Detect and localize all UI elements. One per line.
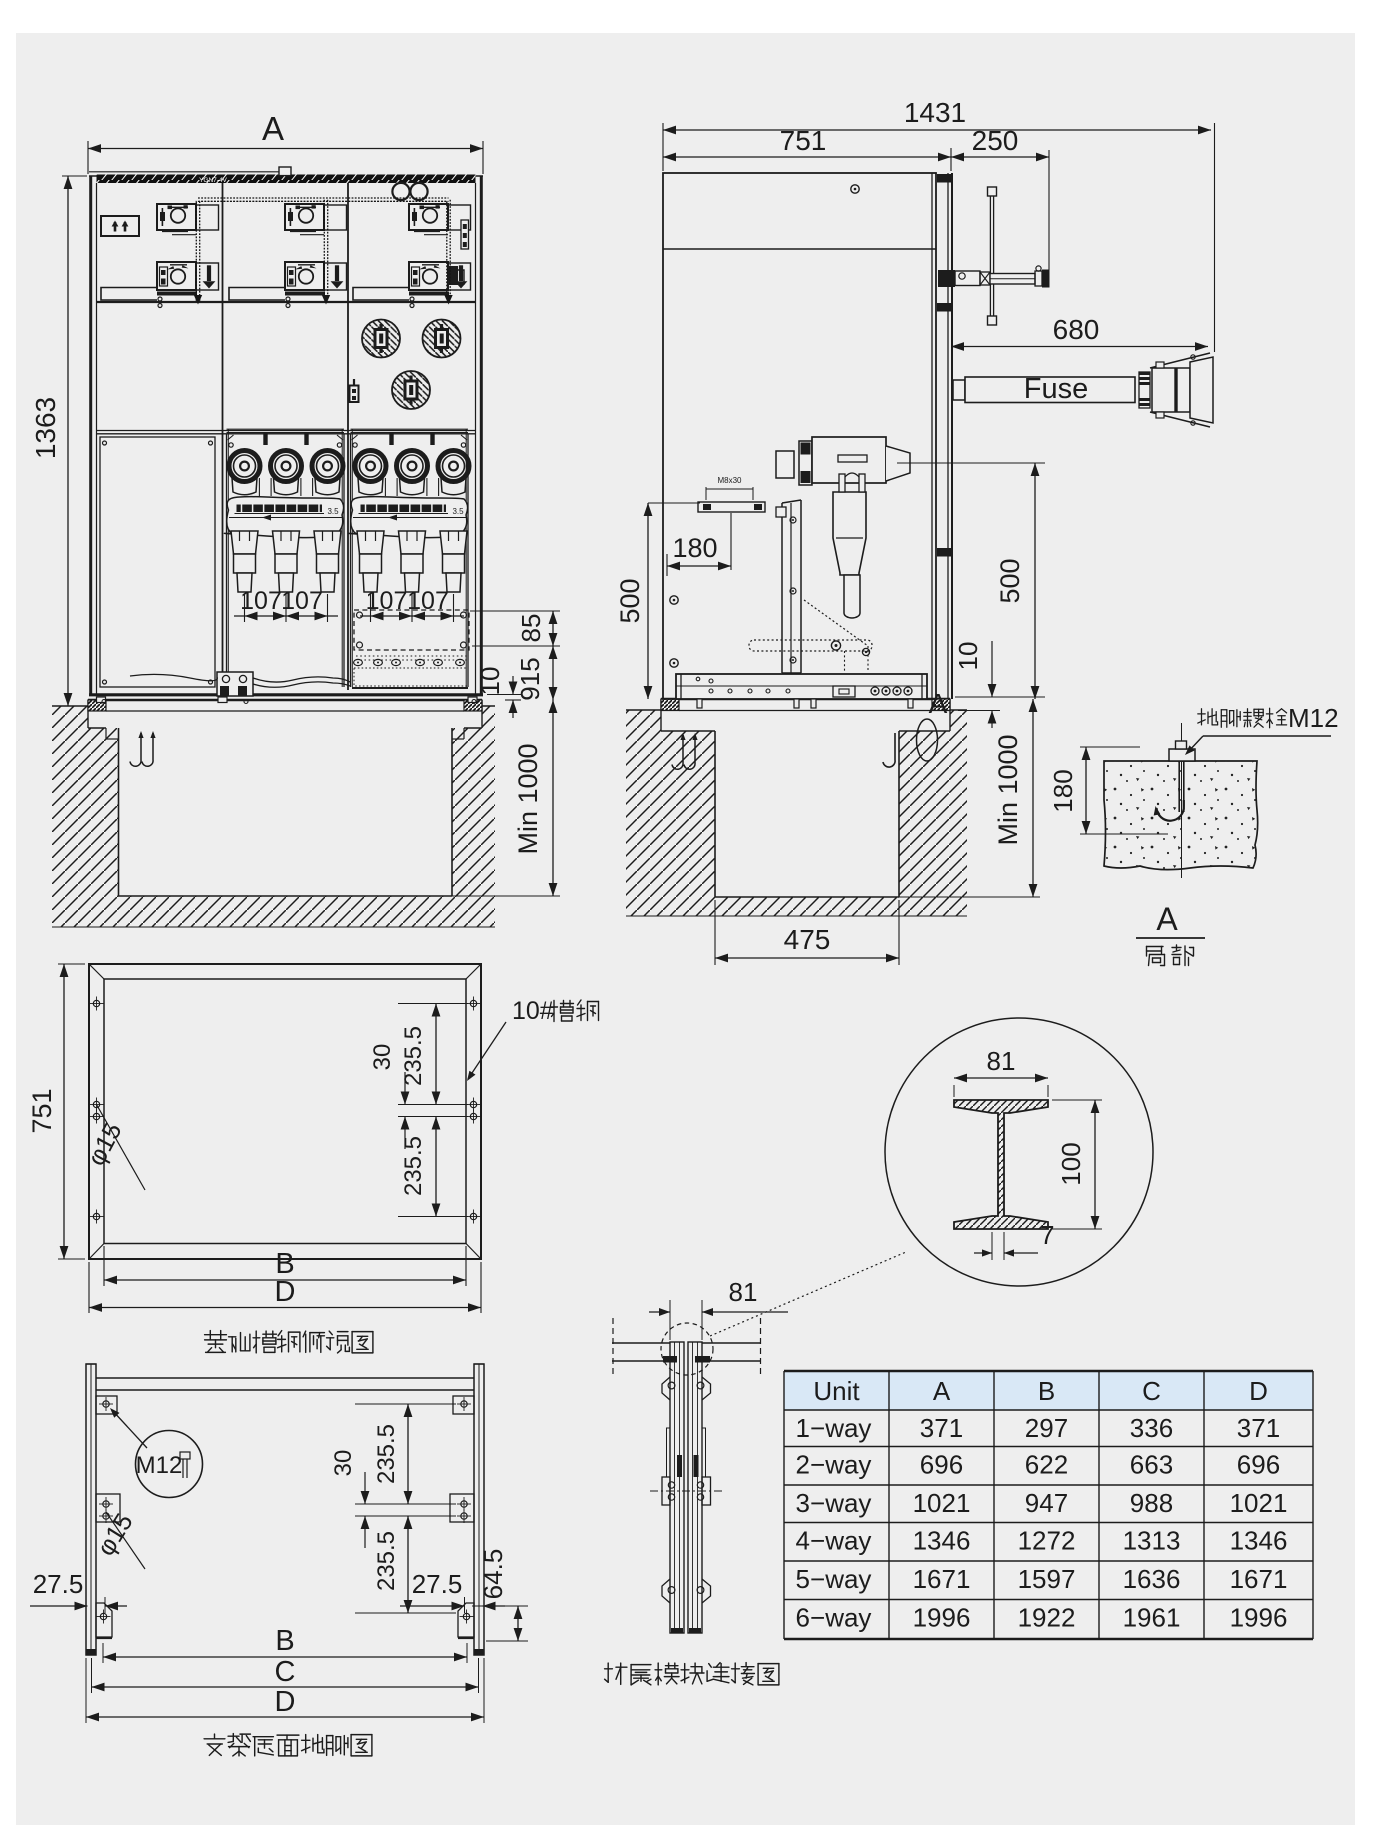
svg-text:30: 30 — [369, 1044, 396, 1071]
svg-text:D: D — [275, 1276, 296, 1308]
svg-text:B: B — [275, 1625, 294, 1657]
svg-text:1671: 1671 — [1230, 1564, 1288, 1594]
svg-text:1431: 1431 — [904, 97, 966, 128]
svg-text:A: A — [933, 1376, 951, 1406]
svg-text:81: 81 — [987, 1046, 1016, 1076]
svg-text:107: 107 — [366, 587, 408, 615]
svg-text:3.5: 3.5 — [452, 507, 464, 516]
svg-text:4−way: 4−way — [796, 1526, 872, 1556]
svg-text:1922: 1922 — [1018, 1603, 1076, 1633]
svg-text:680: 680 — [1053, 314, 1100, 345]
svg-text:500: 500 — [615, 578, 645, 623]
svg-text:Fuse: Fuse — [1024, 373, 1088, 405]
svg-text:M8x30: M8x30 — [717, 476, 742, 485]
svg-text:107: 107 — [240, 587, 282, 615]
svg-text:622: 622 — [1025, 1450, 1068, 1480]
svg-text:235.5: 235.5 — [400, 1026, 427, 1086]
svg-text:1961: 1961 — [1123, 1603, 1181, 1633]
svg-text:1671: 1671 — [913, 1564, 971, 1594]
svg-text:947: 947 — [1025, 1488, 1068, 1518]
svg-text:696: 696 — [1237, 1450, 1280, 1480]
svg-text:D: D — [1249, 1376, 1268, 1406]
svg-text:250: 250 — [972, 125, 1019, 156]
svg-text:500: 500 — [995, 558, 1025, 603]
svg-text:235.5: 235.5 — [373, 1424, 400, 1484]
svg-text:M12: M12 — [136, 1452, 183, 1479]
svg-text:A: A — [1156, 901, 1178, 937]
svg-text:B: B — [1038, 1376, 1055, 1406]
svg-text:475: 475 — [784, 924, 831, 955]
svg-text:85: 85 — [516, 614, 546, 643]
svg-text:336: 336 — [1130, 1413, 1173, 1443]
svg-text:M12: M12 — [1288, 703, 1339, 733]
svg-text:1−way: 1−way — [796, 1413, 872, 1443]
svg-text:6−way: 6−way — [796, 1603, 872, 1633]
svg-text:180: 180 — [1048, 769, 1078, 812]
svg-text:YGN7-4V: YGN7-4V — [199, 177, 227, 184]
svg-text:10: 10 — [475, 667, 505, 696]
svg-text:1021: 1021 — [913, 1488, 971, 1518]
svg-text:C: C — [275, 1656, 296, 1688]
svg-text:10#: 10# — [512, 997, 554, 1025]
svg-text:235.5: 235.5 — [400, 1136, 427, 1196]
svg-text:1996: 1996 — [1230, 1603, 1288, 1633]
svg-text:100: 100 — [1056, 1142, 1086, 1185]
svg-text:Min 1000: Min 1000 — [513, 743, 543, 854]
svg-text:988: 988 — [1130, 1488, 1173, 1518]
svg-text:81: 81 — [729, 1277, 758, 1307]
svg-text:371: 371 — [1237, 1413, 1280, 1443]
svg-text:235.5: 235.5 — [373, 1531, 400, 1591]
svg-text:10: 10 — [953, 642, 983, 671]
svg-text:5−way: 5−way — [796, 1564, 872, 1594]
svg-text:2−way: 2−way — [796, 1450, 872, 1480]
svg-text:1346: 1346 — [1230, 1526, 1288, 1556]
svg-text:751: 751 — [780, 125, 827, 156]
svg-text:3.5: 3.5 — [327, 507, 339, 516]
svg-text:3−way: 3−way — [796, 1488, 872, 1518]
svg-text:A: A — [262, 110, 284, 147]
svg-text:1272: 1272 — [1018, 1526, 1076, 1556]
svg-text:27.5: 27.5 — [412, 1569, 463, 1599]
svg-text:7: 7 — [1040, 1220, 1054, 1250]
svg-text:1363: 1363 — [30, 397, 61, 459]
svg-text:297: 297 — [1025, 1413, 1068, 1443]
svg-text:663: 663 — [1130, 1450, 1173, 1480]
svg-text:D: D — [275, 1686, 296, 1718]
svg-text:751: 751 — [27, 1088, 57, 1133]
svg-text:180: 180 — [672, 533, 717, 563]
svg-text:107: 107 — [407, 587, 449, 615]
svg-text:C: C — [1142, 1376, 1161, 1406]
svg-text:371: 371 — [920, 1413, 963, 1443]
svg-text:1996: 1996 — [913, 1603, 971, 1633]
svg-text:1346: 1346 — [913, 1526, 971, 1556]
svg-text:27.5: 27.5 — [33, 1569, 84, 1599]
svg-text:1597: 1597 — [1018, 1564, 1076, 1594]
svg-text:1313: 1313 — [1123, 1526, 1181, 1556]
svg-text:107: 107 — [281, 587, 323, 615]
svg-text:64.5: 64.5 — [478, 1549, 508, 1600]
svg-text:30: 30 — [330, 1450, 357, 1477]
svg-text:1636: 1636 — [1123, 1564, 1181, 1594]
svg-text:Min 1000: Min 1000 — [993, 734, 1023, 845]
svg-text:Unit: Unit — [813, 1376, 860, 1406]
svg-text:1021: 1021 — [1230, 1488, 1288, 1518]
svg-text:696: 696 — [920, 1450, 963, 1480]
